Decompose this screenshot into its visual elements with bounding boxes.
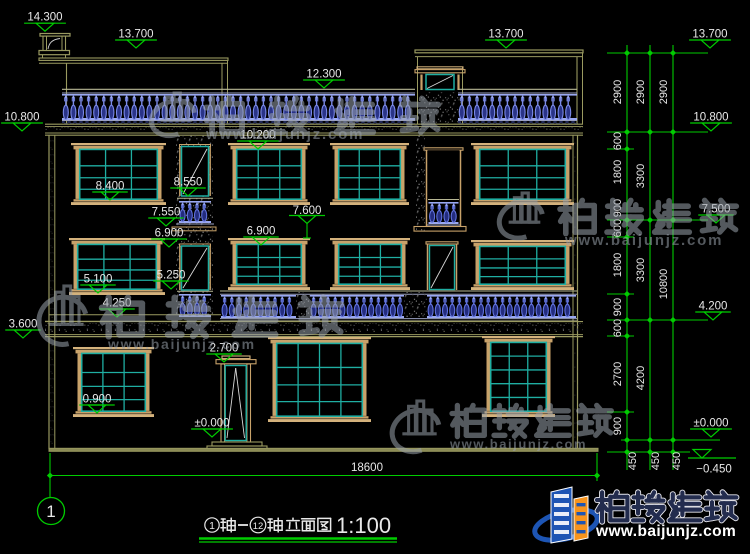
svg-text:2900: 2900 (612, 80, 624, 104)
svg-text:5.100: 5.100 (84, 274, 113, 286)
svg-text:6.900: 6.900 (155, 228, 184, 240)
svg-text:www.baijunjz.com: www.baijunjz.com (449, 436, 587, 451)
svg-text:1800: 1800 (612, 253, 624, 277)
svg-text:450: 450 (671, 452, 683, 470)
svg-text:8.550: 8.550 (174, 177, 203, 189)
svg-text:600: 600 (612, 319, 624, 337)
svg-text:www.baijunjz.com: www.baijunjz.com (595, 523, 736, 540)
svg-text:1: 1 (209, 520, 215, 532)
svg-text:3300: 3300 (635, 258, 647, 282)
svg-text:13.700: 13.700 (118, 29, 153, 41)
svg-text:1:100: 1:100 (336, 513, 391, 538)
svg-text:4200: 4200 (635, 366, 647, 390)
svg-text:12: 12 (253, 521, 264, 532)
svg-text:18600: 18600 (351, 462, 383, 474)
svg-text:6.900: 6.900 (247, 226, 276, 238)
svg-text:3.600: 3.600 (9, 319, 38, 331)
svg-text:13.700: 13.700 (692, 29, 727, 41)
svg-text:www.baijunjz.com: www.baijunjz.com (107, 336, 256, 352)
svg-text:4.200: 4.200 (699, 301, 728, 313)
svg-text:10800: 10800 (658, 269, 670, 300)
svg-text:3300: 3300 (635, 164, 647, 188)
svg-text:8.400: 8.400 (96, 181, 125, 193)
svg-text:450: 450 (650, 452, 662, 470)
svg-text:12.300: 12.300 (306, 69, 341, 81)
svg-text:450: 450 (627, 452, 639, 470)
svg-text:www.baijunjz.com: www.baijunjz.com (205, 126, 364, 143)
svg-text:600: 600 (612, 132, 624, 150)
svg-text:−0.450: −0.450 (696, 464, 732, 476)
svg-text:5.250: 5.250 (157, 270, 186, 282)
svg-text:900: 900 (612, 298, 624, 316)
svg-text:1800: 1800 (612, 160, 624, 184)
svg-text:2900: 2900 (635, 80, 647, 104)
svg-text:2700: 2700 (612, 362, 624, 386)
svg-text:900: 900 (612, 417, 624, 435)
svg-text:±0.000: ±0.000 (693, 418, 728, 430)
svg-text:13.700: 13.700 (488, 29, 523, 41)
svg-text:10.800: 10.800 (693, 112, 728, 124)
svg-text:±0.000: ±0.000 (194, 418, 229, 430)
svg-text:14.300: 14.300 (27, 12, 62, 24)
svg-text:10.800: 10.800 (4, 112, 39, 124)
svg-text:0.900: 0.900 (83, 394, 112, 406)
svg-text:7.550: 7.550 (152, 207, 181, 219)
svg-text:www.baijunjz.com: www.baijunjz.com (564, 232, 723, 249)
svg-text:1: 1 (46, 502, 55, 521)
svg-text:2900: 2900 (658, 80, 670, 104)
